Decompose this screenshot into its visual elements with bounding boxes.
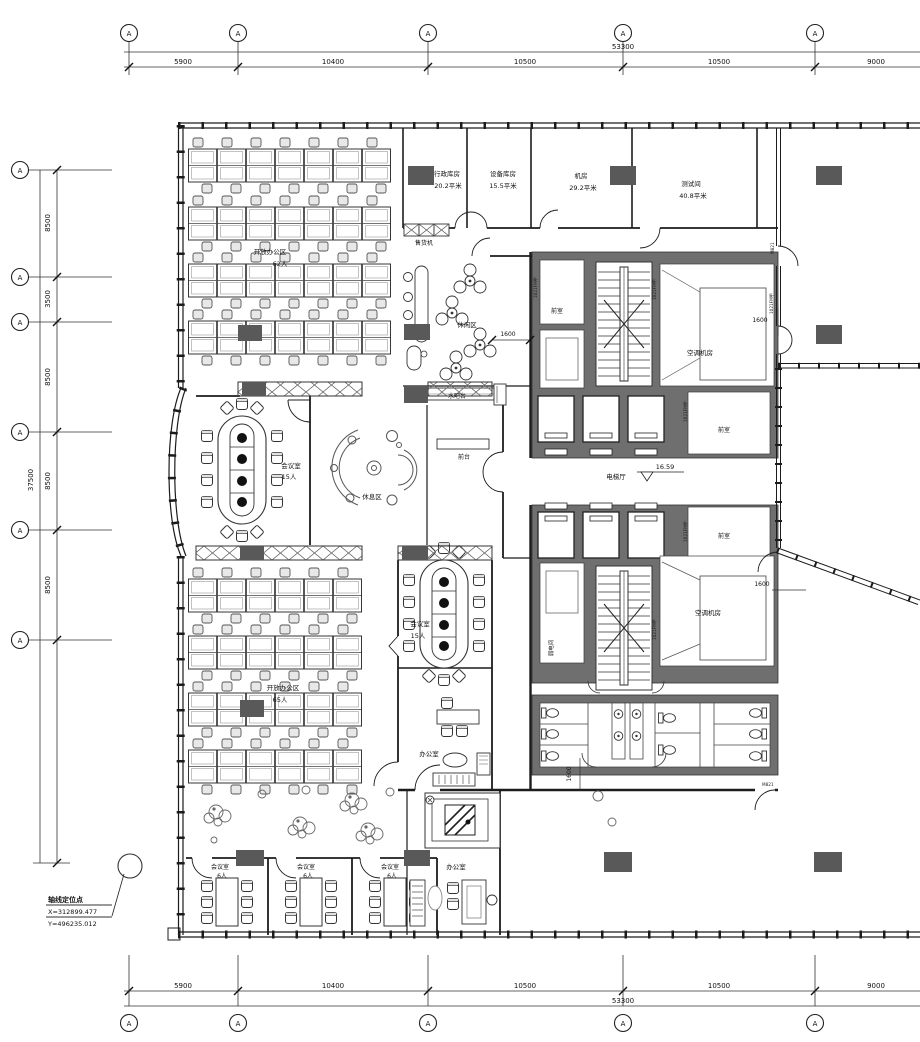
room-label: 行政库房 — [434, 169, 460, 178]
grid-label: A — [621, 30, 626, 38]
dim-total-top: 53300 — [612, 43, 634, 51]
grid-label: A — [18, 167, 23, 175]
room-label: 前室 — [718, 426, 730, 434]
grid-label: A — [236, 1020, 241, 1028]
dim-segment: 10500 — [514, 982, 536, 990]
grid-label: A — [621, 1020, 626, 1028]
room-label: 前台 — [458, 453, 470, 461]
level-value: 16.59 — [656, 463, 675, 471]
dim-segment: 10500 — [708, 982, 730, 990]
floor-plan-sheet: A A A A A 53300 5900 10400 10500 10500 9… — [0, 0, 920, 1042]
grid-label: A — [426, 1020, 431, 1028]
open-office-north-desks — [189, 138, 391, 365]
dim-1600: 1600 — [752, 317, 767, 324]
room-label: 弱电间 — [547, 640, 555, 657]
elevator-shaft — [583, 396, 619, 442]
dimension-strip-top: A A A A A 53300 5900 10400 10500 10500 9… — [121, 25, 920, 76]
desk — [462, 880, 486, 924]
grid-label: A — [236, 30, 241, 38]
room-label: 前室 — [718, 532, 730, 540]
room-label: 会议室 — [381, 863, 399, 871]
office-center-furniture — [437, 698, 490, 776]
dim-segment: 9000 — [867, 982, 885, 990]
door-code: M821 — [770, 242, 775, 254]
room-label: 办公室 — [446, 862, 466, 871]
dim-segment: 5900 — [174, 982, 192, 990]
dim-1600: 1600 — [754, 581, 769, 588]
room-label: 空调机房 — [695, 608, 721, 617]
grid-label: A — [127, 1020, 132, 1028]
dim-segment: 8500 — [44, 368, 52, 386]
service-core — [532, 252, 778, 775]
room-label: 机房 — [575, 171, 588, 180]
room-label: 开放办公区 — [267, 683, 300, 692]
elevator-shaft — [628, 512, 664, 558]
grid-label: A — [127, 30, 132, 38]
grid-label: A — [18, 429, 23, 437]
grid-label: A — [813, 30, 818, 38]
grid-label: A — [813, 1020, 818, 1028]
room-area: 29.2平米 — [569, 183, 597, 192]
dim-segment: 8500 — [44, 576, 52, 594]
column — [404, 324, 430, 340]
room-capacity: 6人 — [303, 873, 313, 880]
room-label: 开放办公区 — [254, 247, 287, 256]
room-area: 40.8平米 — [679, 191, 707, 200]
room-label: 会议室 — [281, 461, 301, 470]
dim-total-left: 37500 — [27, 469, 35, 491]
dim-segment: 8500 — [44, 472, 52, 490]
grid-label: A — [18, 637, 23, 645]
room-area: 20.2平米 — [434, 181, 462, 190]
stair-north — [596, 262, 652, 386]
elevator-shaft — [583, 512, 619, 558]
room-capacity: 65人 — [273, 696, 288, 704]
dim-segment: 9000 — [867, 58, 885, 66]
room-label: 会议室 — [297, 863, 315, 871]
level-marker: 16.59 — [637, 463, 684, 481]
anteroom-north — [688, 392, 770, 454]
conference-table-15-center — [404, 543, 485, 686]
elevator-shaft — [628, 396, 664, 442]
elevator-shaft — [538, 512, 574, 558]
grid-label: A — [426, 30, 431, 38]
room-label: 办公室 — [419, 749, 439, 758]
room-capacity: 15人 — [282, 473, 297, 481]
room-capacity: 6人 — [217, 873, 227, 880]
dim-segment: 10500 — [514, 58, 536, 66]
datum-annotation: 轴线定位点 X=312899.477 Y=496235.012 — [46, 854, 142, 928]
dim-1600: 1600 — [566, 766, 573, 781]
conference-table-6 — [286, 878, 337, 926]
dim-segment: 10500 — [708, 58, 730, 66]
room-capacity: 6人 — [387, 873, 397, 880]
room-capacity: 15人 — [411, 632, 426, 640]
dim-segment: 10400 — [322, 58, 344, 66]
stair-south — [596, 566, 652, 690]
hvac-room-north — [660, 264, 774, 386]
elevator-shaft — [538, 396, 574, 442]
door-code: M821 — [762, 782, 774, 787]
grid-label: A — [18, 274, 23, 282]
lounge-furniture — [404, 264, 497, 380]
room-label: 会议室 — [211, 863, 229, 871]
office-south-furniture — [410, 773, 500, 926]
room-label: 水吧台 — [448, 392, 466, 400]
open-office-south-desks — [189, 568, 362, 794]
dim-segment: 8500 — [44, 214, 52, 232]
reception-desk — [437, 439, 489, 449]
dim-segment: 10400 — [322, 982, 344, 990]
cabinet — [410, 880, 425, 926]
vending-machines — [404, 224, 449, 236]
datum-y: Y=496235.012 — [47, 920, 97, 928]
room-label: 会议室 — [410, 619, 430, 628]
room-label: 空调机房 — [687, 348, 713, 357]
dim-1600: 1600 — [500, 331, 515, 338]
room-label: 设备库房 — [490, 169, 516, 178]
room-capacity: 62人 — [273, 260, 288, 268]
conference-table-15-west — [202, 399, 283, 542]
datum-x: X=312899.477 — [48, 908, 97, 916]
grid-label: A — [18, 319, 23, 327]
planting-row — [204, 786, 616, 844]
room-label: 前室 — [551, 307, 563, 315]
dim-segment: 5900 — [174, 58, 192, 66]
floor-plan-drawing: A A A A A 53300 5900 10400 10500 10500 9… — [0, 0, 920, 1042]
room-label: 休息区 — [362, 492, 382, 501]
dim-total-bottom: 53300 — [612, 997, 634, 1005]
room-area: 15.5平米 — [489, 181, 517, 190]
dimension-strip-bottom: 5900 10400 10500 10500 9000 53300 A A A … — [121, 955, 920, 1032]
dim-segment: 3500 — [44, 290, 52, 308]
room-label: 测试间 — [681, 179, 701, 188]
datum-title: 轴线定位点 — [48, 895, 83, 904]
room-label: 售货机 — [415, 239, 433, 247]
grid-label: A — [18, 527, 23, 535]
conference-table-6 — [202, 878, 253, 926]
dimension-strip-left: A A A A A A 8500 3500 8500 8500 8500 375… — [12, 162, 113, 868]
room-label: 休闲区 — [457, 320, 477, 329]
room-label: 电梯厅 — [606, 472, 626, 481]
